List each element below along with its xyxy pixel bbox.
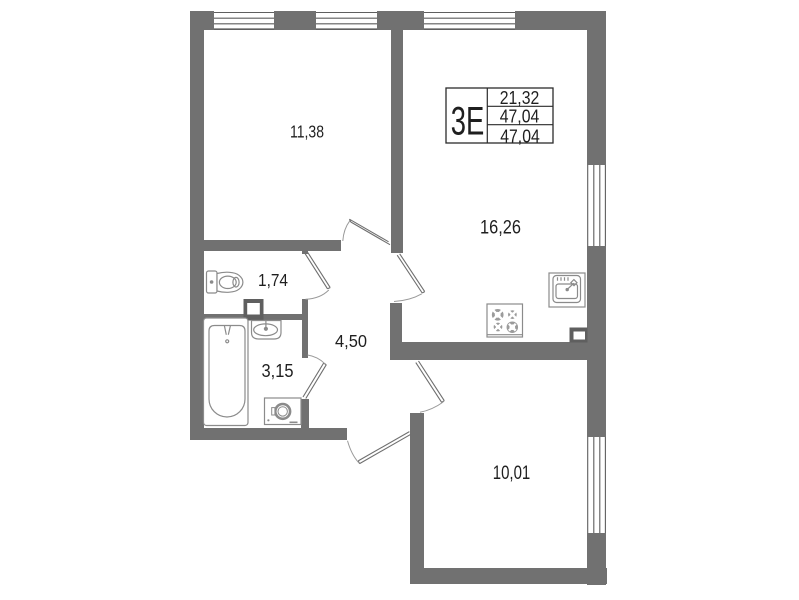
svg-text:3,15: 3,15: [262, 361, 294, 381]
svg-text:10,01: 10,01: [493, 462, 531, 484]
svg-text:1,74: 1,74: [258, 270, 288, 290]
svg-text:11,38: 11,38: [290, 122, 324, 142]
svg-text:47,04: 47,04: [500, 125, 540, 146]
svg-text:47,04: 47,04: [500, 105, 540, 126]
svg-text:4,50: 4,50: [335, 331, 367, 351]
svg-text:3Е: 3Е: [451, 99, 485, 143]
svg-text:16,26: 16,26: [480, 217, 521, 239]
